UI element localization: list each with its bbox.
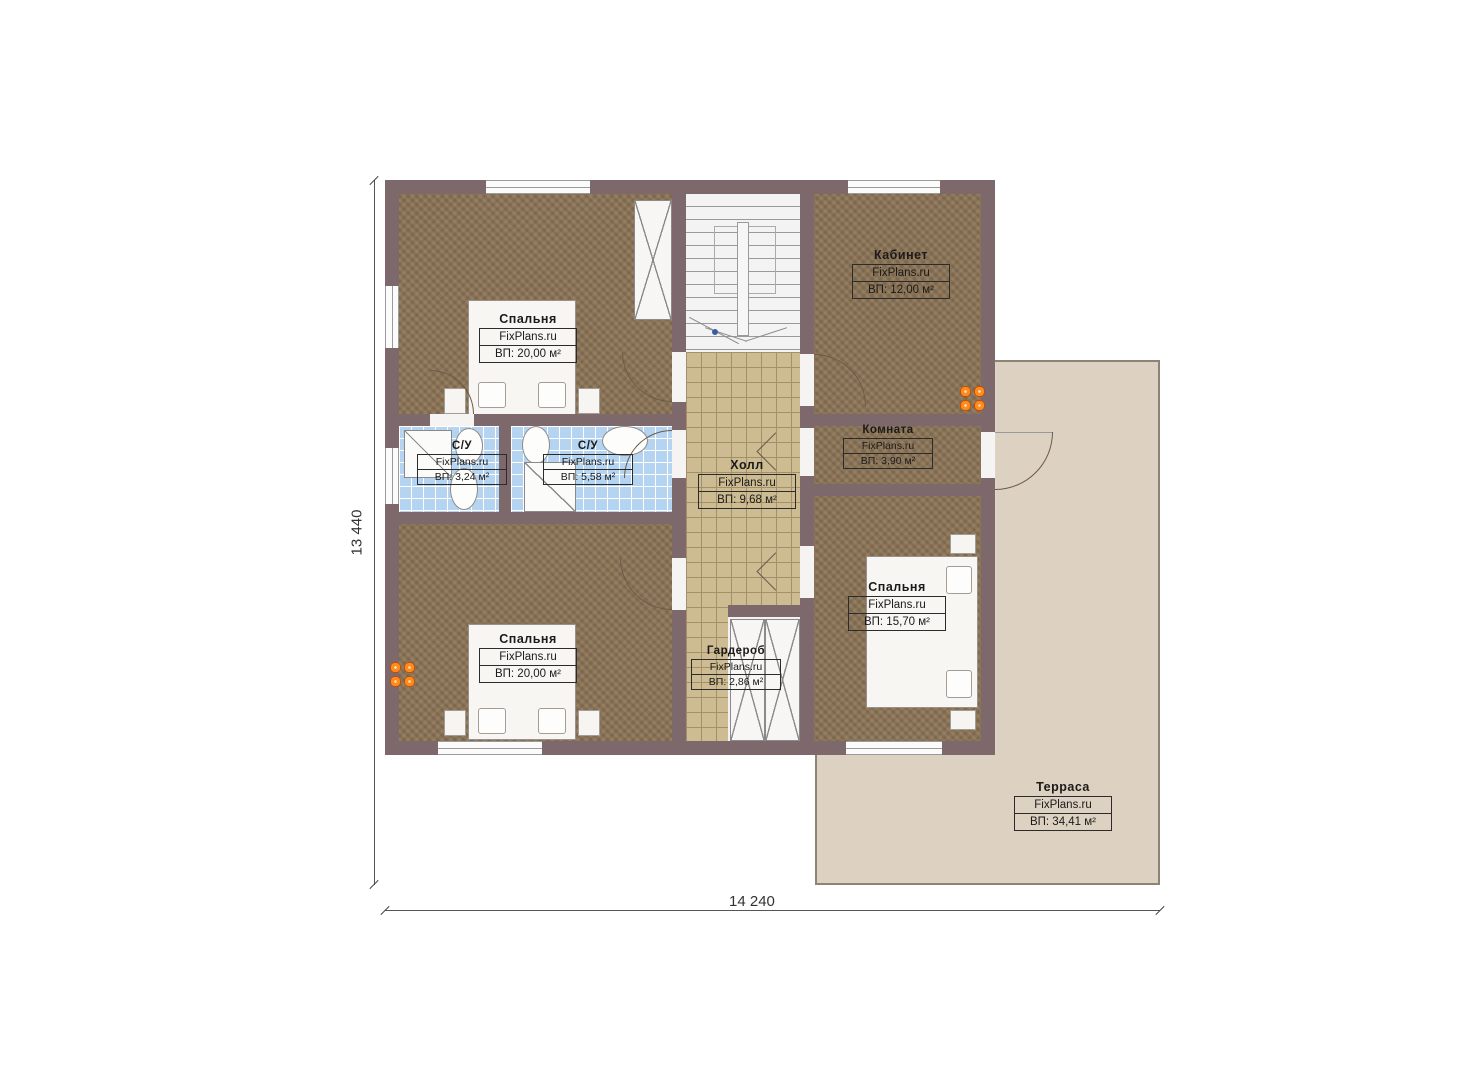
watermark: FixPlans.ru xyxy=(417,454,507,470)
room-name: Спальня xyxy=(479,312,577,326)
door-opening xyxy=(672,558,686,610)
room-name: С/У xyxy=(543,440,633,452)
door-opening xyxy=(981,432,995,478)
room-label-hall: Холл FixPlans.ru ВП: 9,68 м² xyxy=(698,458,796,509)
room-area: ВП: 34,41 м² xyxy=(1014,814,1112,831)
nightstand xyxy=(950,534,976,554)
pillow xyxy=(946,670,972,698)
watermark: FixPlans.ru xyxy=(691,659,781,675)
dimension-label-horizontal: 14 240 xyxy=(725,893,779,910)
room-area: ВП: 15,70 м² xyxy=(848,614,946,631)
door-opening xyxy=(430,414,474,426)
room-label-study: Кабинет FixPlans.ru ВП: 12,00 м² xyxy=(852,248,950,299)
room-area: ВП: 12,00 м² xyxy=(852,282,950,299)
wall-bath-bottom xyxy=(399,512,672,524)
nightstand xyxy=(578,388,600,414)
window xyxy=(848,180,940,194)
terrace-border-right xyxy=(1158,360,1160,885)
room-label-wardrobe: Гардероб FixPlans.ru ВП: 2,86 м² xyxy=(691,645,781,690)
watermark: FixPlans.ru xyxy=(848,596,946,614)
room-name: Спальня xyxy=(479,632,577,646)
room-label-bathroom-large: С/У FixPlans.ru ВП: 5,58 м² xyxy=(543,440,633,485)
room-area: ВП: 20,00 м² xyxy=(479,666,577,683)
door-opening xyxy=(672,430,686,478)
room-name: Гардероб xyxy=(691,645,781,657)
window xyxy=(385,448,399,504)
room-name: Терраса xyxy=(1014,780,1112,794)
room-area: ВП: 2,86 м² xyxy=(691,675,781,690)
radiator-icon xyxy=(390,662,415,687)
pillow xyxy=(478,708,506,734)
room-area: ВП: 3,24 м² xyxy=(417,470,507,485)
door-opening xyxy=(800,428,814,476)
window xyxy=(486,180,590,194)
door-opening xyxy=(672,352,686,402)
room-area: ВП: 20,00 м² xyxy=(479,346,577,363)
room-area: ВП: 9,68 м² xyxy=(698,492,796,509)
terrace-border-top xyxy=(995,360,1160,362)
door-opening xyxy=(800,546,814,598)
terrace-border-bottom xyxy=(815,883,1160,885)
dimension-line-horizontal xyxy=(385,910,1160,911)
room-name: Холл xyxy=(698,458,796,472)
watermark: FixPlans.ru xyxy=(543,454,633,470)
room-label-room: Комната FixPlans.ru ВП: 3,90 м² xyxy=(843,424,933,469)
stair-start-dot xyxy=(712,329,718,335)
room-label-bathroom-small: С/У FixPlans.ru ВП: 3,24 м² xyxy=(417,440,507,485)
room-area: ВП: 3,90 м² xyxy=(843,454,933,469)
terrace-border-left xyxy=(815,755,817,885)
nightstand xyxy=(950,710,976,730)
wall-room-bedroomR xyxy=(814,484,981,496)
room-label-terrace: Терраса FixPlans.ru ВП: 34,41 м² xyxy=(1014,780,1112,831)
floor-plan-canvas: Спальня FixPlans.ru ВП: 20,00 м² Кабинет… xyxy=(0,0,1474,1080)
pillow xyxy=(538,382,566,408)
door-opening xyxy=(800,354,814,406)
room-label-bedroom-bottom-left: Спальня FixPlans.ru ВП: 20,00 м² xyxy=(479,632,577,683)
room-label-bedroom-right: Спальня FixPlans.ru ВП: 15,70 м² xyxy=(848,580,946,631)
room-name: Комната xyxy=(843,424,933,436)
closet-icon xyxy=(634,200,672,320)
watermark: FixPlans.ru xyxy=(698,474,796,492)
watermark: FixPlans.ru xyxy=(852,264,950,282)
pillow xyxy=(946,566,972,594)
window xyxy=(438,741,542,755)
room-name: С/У xyxy=(417,440,507,452)
room-name: Спальня xyxy=(848,580,946,594)
watermark: FixPlans.ru xyxy=(1014,796,1112,814)
room-area: ВП: 5,58 м² xyxy=(543,470,633,485)
dimension-line-vertical xyxy=(374,180,375,885)
wall-wardrobe-top xyxy=(728,605,800,617)
stair-divider xyxy=(737,222,749,336)
nightstand xyxy=(444,710,466,736)
watermark: FixPlans.ru xyxy=(479,648,577,666)
pillow xyxy=(538,708,566,734)
dimension-label-vertical: 13 440 xyxy=(348,506,365,560)
watermark: FixPlans.ru xyxy=(479,328,577,346)
watermark: FixPlans.ru xyxy=(843,438,933,454)
window xyxy=(846,741,942,755)
nightstand xyxy=(578,710,600,736)
room-label-bedroom-top-left: Спальня FixPlans.ru ВП: 20,00 м² xyxy=(479,312,577,363)
room-name: Кабинет xyxy=(852,248,950,262)
window xyxy=(385,286,399,348)
radiator-icon xyxy=(960,386,985,411)
pillow xyxy=(478,382,506,408)
